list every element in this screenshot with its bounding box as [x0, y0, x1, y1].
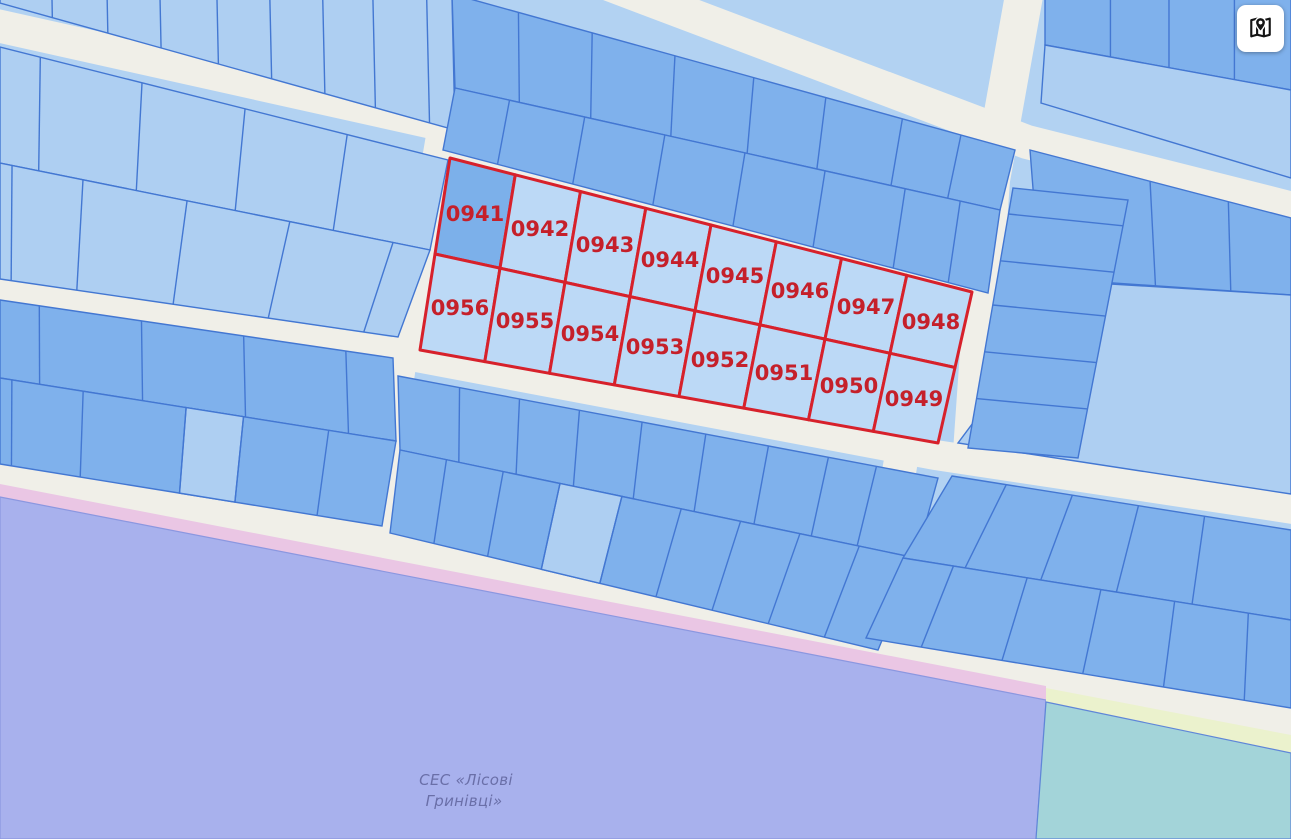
parcel-label-0954: 0954	[561, 322, 619, 346]
cadastral-map[interactable]: 0941 0942 0943 0944 0945 0946 0947 0948 …	[0, 0, 1291, 839]
parcel	[180, 408, 244, 503]
parcel-divider	[107, 0, 108, 33]
parcel-label-0946: 0946	[771, 279, 829, 303]
map-layers-button[interactable]	[1237, 5, 1284, 52]
parcel-label-0944: 0944	[641, 248, 699, 272]
map-viewport: 0941 0942 0943 0944 0945 0946 0947 0948 …	[0, 0, 1291, 839]
parcel-label-0956: 0956	[431, 296, 489, 320]
parcel-divider	[518, 12, 519, 102]
parcel-label-0949: 0949	[885, 387, 943, 411]
parcel-label-0941: 0941	[446, 202, 504, 226]
parcel-label-0943: 0943	[576, 233, 634, 257]
region-label-line1: СЕС «Лісові	[419, 771, 513, 789]
map-location-icon	[1247, 15, 1274, 42]
parcel-label-0947: 0947	[837, 295, 895, 319]
parcel-label-0950: 0950	[820, 374, 878, 398]
region-label-line2: Гринівці»	[426, 792, 503, 810]
parcel-label-0951: 0951	[755, 361, 813, 385]
parcel-label-0953: 0953	[626, 335, 684, 359]
parcel-label-0952: 0952	[691, 348, 749, 372]
parcel-label-0948: 0948	[902, 310, 960, 334]
parcel-label-0945: 0945	[706, 264, 764, 288]
parcel-divider	[459, 388, 460, 463]
parcel-label-0942: 0942	[511, 217, 569, 241]
parcel-divider	[11, 165, 12, 280]
parcel-label-0955: 0955	[496, 309, 554, 333]
